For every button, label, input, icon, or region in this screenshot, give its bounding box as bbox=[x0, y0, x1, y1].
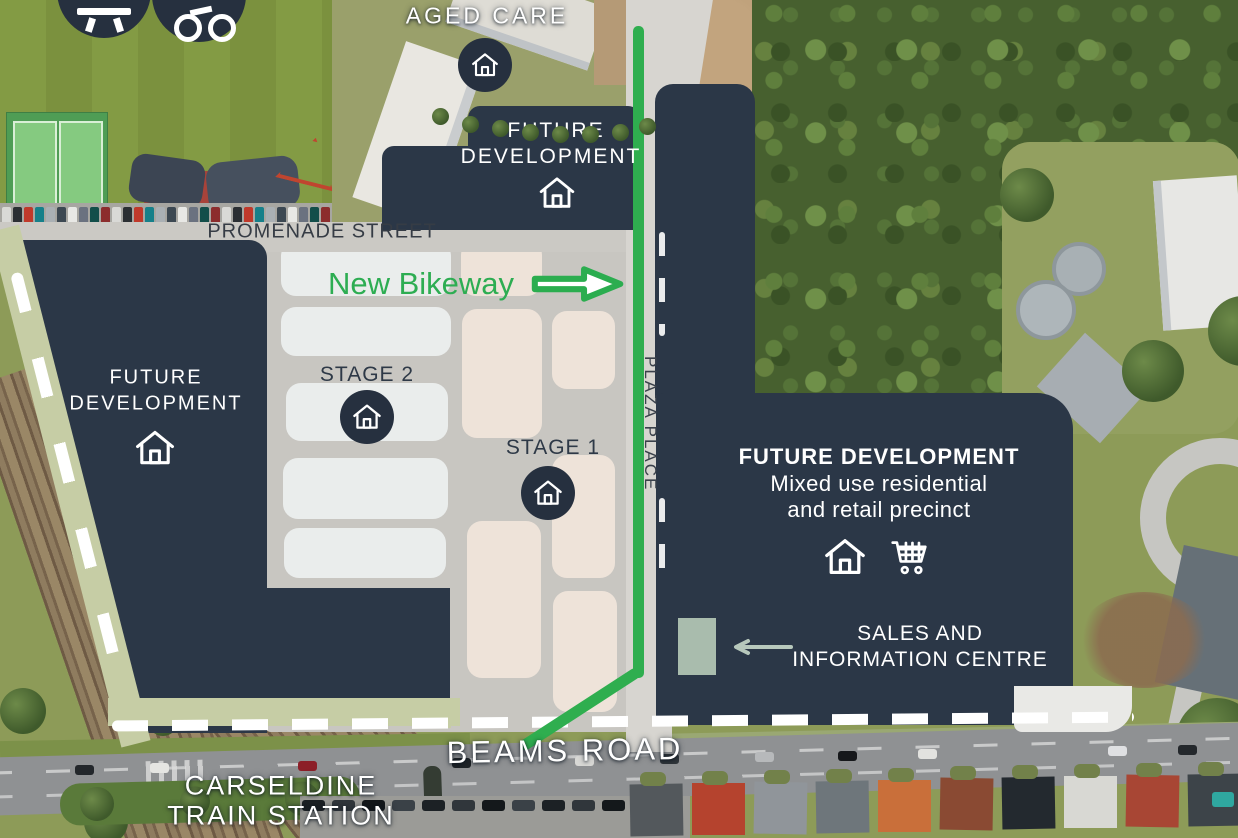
future-development-left-label: FUTURE bbox=[109, 367, 202, 390]
front-garden bbox=[1198, 762, 1224, 776]
front-garden bbox=[950, 766, 976, 780]
front-garden bbox=[702, 771, 728, 785]
corner-building-pad bbox=[1014, 686, 1132, 732]
train-station-label: CARSELDINE bbox=[185, 771, 378, 802]
tree bbox=[432, 108, 449, 125]
house-circle-icon bbox=[521, 466, 575, 520]
house-roof bbox=[1126, 775, 1180, 828]
backyard-pool bbox=[1212, 792, 1234, 807]
front-garden bbox=[640, 772, 666, 786]
house-roof bbox=[878, 780, 931, 832]
parked-car bbox=[542, 800, 565, 811]
tree bbox=[1000, 168, 1054, 222]
house-icon bbox=[133, 426, 177, 475]
arrow-right-icon bbox=[526, 265, 630, 308]
site-plan-map: AGED CARE FUTURE DEVELOPMENT PROMENADE S… bbox=[0, 0, 1238, 838]
stage-2-lot bbox=[281, 307, 451, 356]
stage-1-lot bbox=[467, 521, 541, 678]
parked-car bbox=[452, 800, 475, 811]
tree bbox=[1122, 340, 1184, 402]
car bbox=[1108, 746, 1127, 756]
shopping-cart-icon bbox=[886, 534, 932, 585]
future-development-right-upper-block bbox=[655, 84, 755, 398]
tree bbox=[492, 120, 509, 137]
tree bbox=[552, 126, 569, 143]
house-roof bbox=[1002, 777, 1056, 830]
house-icon bbox=[537, 173, 577, 218]
stage-2-label: STAGE 2 bbox=[320, 363, 414, 387]
beams-road-label: BEAMS ROAD bbox=[446, 731, 683, 771]
road-edge-marking bbox=[659, 232, 665, 336]
stage-1-lot bbox=[462, 309, 542, 438]
arrow-left-icon bbox=[728, 638, 794, 661]
sales-centre-label: SALES AND bbox=[857, 622, 983, 646]
tree bbox=[462, 116, 479, 133]
parked-car bbox=[512, 800, 535, 811]
tree bbox=[582, 126, 599, 143]
front-garden bbox=[1012, 765, 1038, 779]
house-roof bbox=[754, 782, 808, 835]
tree bbox=[0, 688, 46, 734]
house-roof bbox=[940, 778, 994, 831]
parked-car bbox=[392, 800, 415, 811]
stage-2-lot bbox=[284, 528, 446, 578]
sales-centre-label: INFORMATION CENTRE bbox=[792, 648, 1048, 672]
car bbox=[75, 765, 94, 775]
stage-1-label: STAGE 1 bbox=[506, 436, 600, 460]
car bbox=[838, 751, 857, 761]
parked-car bbox=[602, 800, 625, 811]
stage-1-lot bbox=[552, 311, 615, 389]
house-icon bbox=[822, 534, 868, 585]
train-station-label: TRAIN STATION bbox=[167, 801, 395, 832]
house-circle-icon bbox=[458, 38, 512, 92]
new-bikeway-label: New Bikeway bbox=[328, 266, 514, 302]
house-circle-icon bbox=[340, 390, 394, 444]
future-development-right-title: FUTURE DEVELOPMENT bbox=[739, 444, 1020, 470]
front-garden bbox=[888, 768, 914, 782]
parked-car bbox=[482, 800, 505, 811]
stage-2-lot bbox=[283, 458, 448, 519]
front-garden bbox=[1136, 763, 1162, 777]
aged-care-label: AGED CARE bbox=[406, 3, 568, 30]
tree bbox=[612, 124, 629, 141]
parked-car bbox=[572, 800, 595, 811]
car bbox=[1178, 745, 1197, 755]
car bbox=[298, 761, 317, 771]
tree bbox=[639, 118, 656, 135]
plaza-place-label: PLAZA PLACE bbox=[640, 356, 660, 516]
house-roof bbox=[1064, 776, 1117, 828]
car bbox=[150, 763, 169, 773]
tree bbox=[522, 124, 539, 141]
future-development-right-subtitle: Mixed use residential bbox=[770, 471, 987, 497]
front-garden bbox=[764, 770, 790, 784]
house-roof bbox=[816, 781, 870, 834]
promenade-street-label: PROMENADE STREET bbox=[207, 221, 436, 244]
future-development-left-label: DEVELOPMENT bbox=[69, 393, 242, 416]
sales-centre-marker bbox=[678, 618, 716, 675]
house-roof bbox=[630, 784, 684, 837]
mulch-patch bbox=[1078, 592, 1210, 688]
car bbox=[755, 752, 774, 762]
parked-car bbox=[422, 800, 445, 811]
future-development-right-subtitle: and retail precinct bbox=[787, 497, 970, 523]
front-garden bbox=[826, 769, 852, 783]
car bbox=[918, 749, 937, 759]
future-development-top-label: DEVELOPMENT bbox=[461, 145, 642, 169]
water-tank bbox=[1016, 280, 1076, 340]
house-roof bbox=[692, 783, 745, 835]
front-garden bbox=[1074, 764, 1100, 778]
